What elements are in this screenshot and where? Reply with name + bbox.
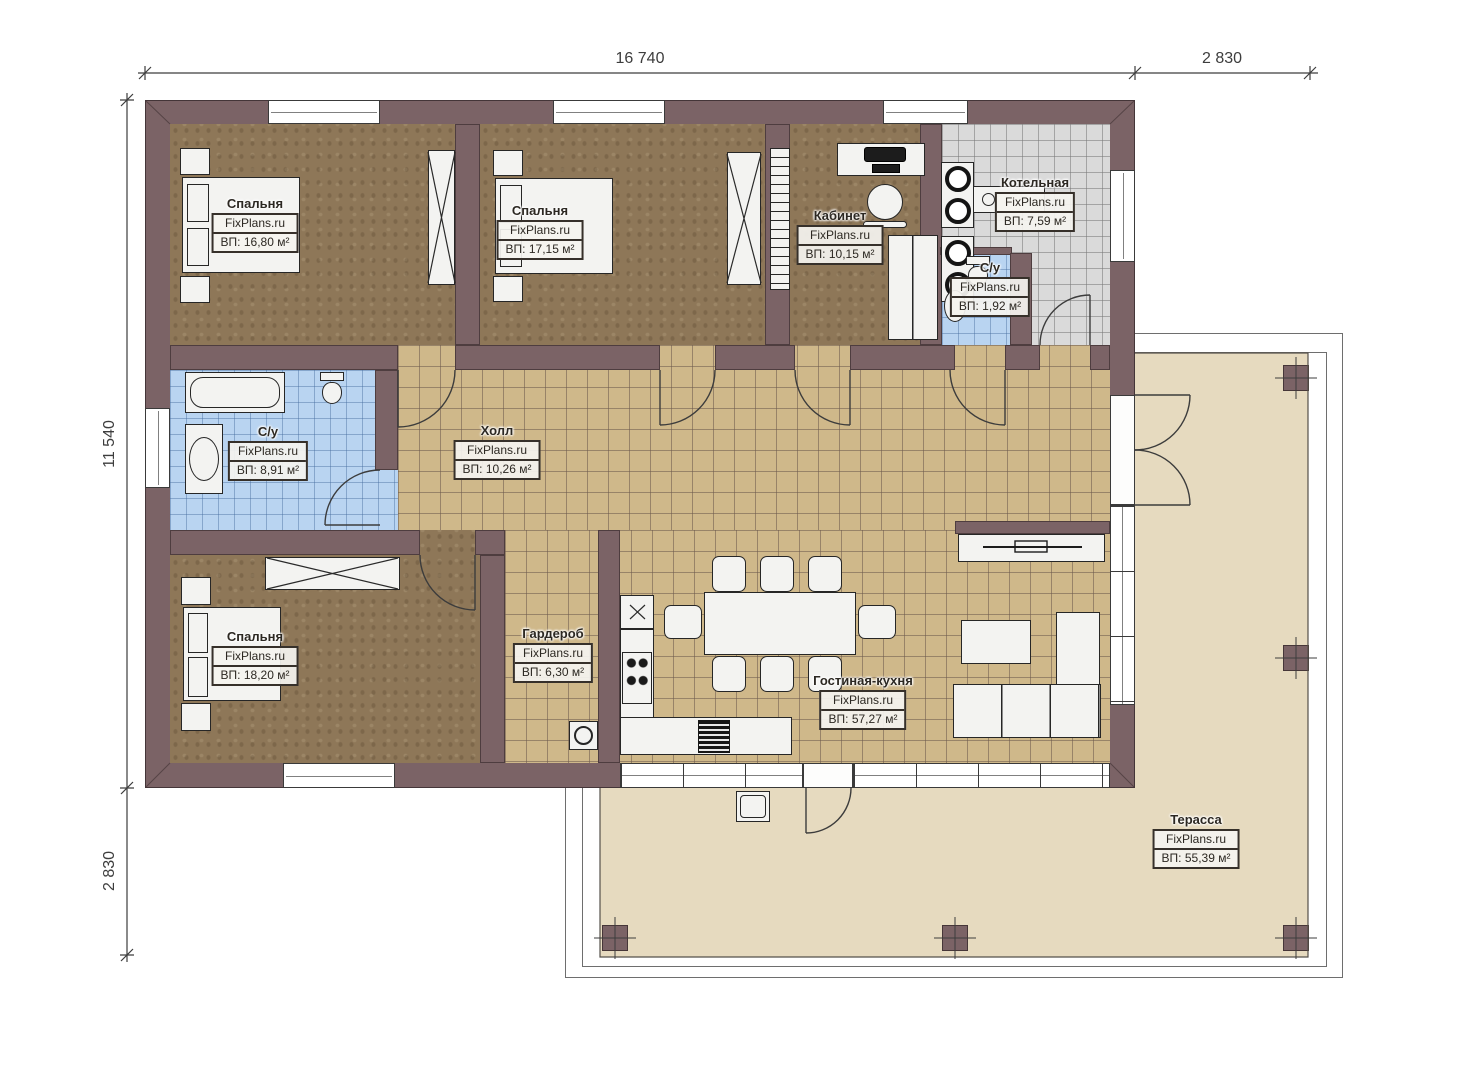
glazing-living-bottom-right <box>853 763 1110 788</box>
room-label-terrace: Терасса FixPlans.ru ВП: 55,39 м² <box>1153 812 1240 869</box>
kitchen-sink <box>736 791 770 822</box>
room-label-living-kitchen: Гостиная-кухня FixPlans.ru ВП: 57,27 м² <box>813 673 913 730</box>
room-label-boiler-room: Котельная FixPlans.ru ВП: 7,59 м² <box>995 175 1075 232</box>
room-area: ВП: 10,15 м² <box>799 244 882 263</box>
room-info-box: FixPlans.ru ВП: 55,39 м² <box>1153 829 1240 869</box>
washing-machine <box>569 721 598 750</box>
room-info-box: FixPlans.ru ВП: 10,15 м² <box>797 225 884 265</box>
dishwasher <box>698 720 730 753</box>
room-info-box: FixPlans.ru ВП: 57,27 м² <box>820 690 907 730</box>
watermark: FixPlans.ru <box>822 692 905 709</box>
room-area: ВП: 1,92 м² <box>952 296 1028 315</box>
watermark: FixPlans.ru <box>997 194 1073 211</box>
wall-hall-top-seg <box>715 345 795 370</box>
glazing-living-bottom-left <box>620 763 803 788</box>
room-area: ВП: 8,91 м² <box>230 460 306 479</box>
water-tank <box>945 166 971 192</box>
dining-chair <box>664 605 702 639</box>
toilet-bowl <box>322 382 342 404</box>
window-office <box>883 100 968 124</box>
dining-chair <box>712 556 746 592</box>
door-hall-terrace-opening <box>1110 395 1135 505</box>
floor-plan: Спальня FixPlans.ru ВП: 16,80 м² Спальня… <box>0 0 1473 1080</box>
watermark: FixPlans.ru <box>952 279 1028 296</box>
room-info-box: FixPlans.ru ВП: 16,80 м² <box>212 213 299 253</box>
room-label-office: Кабинет FixPlans.ru ВП: 10,15 м² <box>797 208 884 265</box>
water-tank <box>945 198 971 224</box>
nightstand <box>493 150 523 176</box>
room-label-bedroom-2: Спальня FixPlans.ru ВП: 17,15 м² <box>497 203 584 260</box>
wall-tv-half <box>955 521 1110 534</box>
watermark: FixPlans.ru <box>499 222 582 239</box>
room-area: ВП: 16,80 м² <box>214 232 297 251</box>
wall-hall-top-seg <box>850 345 955 370</box>
room-info-box: FixPlans.ru ВП: 1,92 м² <box>950 277 1030 317</box>
room-area: ВП: 57,27 м² <box>822 709 905 728</box>
watermark: FixPlans.ru <box>515 645 591 662</box>
pillow <box>187 228 209 266</box>
room-label-hall: Холл FixPlans.ru ВП: 10,26 м² <box>454 423 541 480</box>
dining-chair <box>712 656 746 692</box>
wall-bedroom3-wardrobe <box>480 555 505 763</box>
wall-bedroom3-top-seg <box>170 530 420 555</box>
toilet-tank <box>320 372 344 381</box>
dimension-height-main: 11 540 <box>101 420 119 468</box>
room-area: ВП: 18,20 м² <box>214 665 297 684</box>
laptop <box>872 164 900 173</box>
window-bathroom <box>145 408 170 488</box>
room-name: Кабинет <box>797 208 884 223</box>
room-name: Холл <box>454 423 541 438</box>
glazing-living-right <box>1110 505 1135 705</box>
wall-hall-top-seg <box>170 345 398 370</box>
room-area: ВП: 10,26 м² <box>456 459 539 478</box>
terrace-column <box>1283 365 1309 391</box>
tv-stand <box>958 534 1105 562</box>
wardrobe-closet <box>727 152 761 285</box>
terrace-column <box>602 925 628 951</box>
boiler-dial <box>982 193 995 206</box>
wall-bedroom1-bedroom2 <box>455 124 480 345</box>
nightstand <box>493 276 523 302</box>
room-name: Спальня <box>212 629 299 644</box>
room-label-bedroom-3: Спальня FixPlans.ru ВП: 18,20 м² <box>212 629 299 686</box>
shelving-unit <box>770 148 790 290</box>
wall-hall-top-seg <box>455 345 660 370</box>
sofa <box>953 684 1101 738</box>
window-boiler <box>1110 170 1135 262</box>
room-name: Гостиная-кухня <box>813 673 913 688</box>
window-bedroom1 <box>268 100 380 124</box>
watermark: FixPlans.ru <box>214 648 297 665</box>
nightstand <box>180 148 210 175</box>
sofa-chaise <box>1056 612 1100 686</box>
window-bedroom2 <box>553 100 665 124</box>
wall-bathroom-right <box>375 370 398 470</box>
watermark: FixPlans.ru <box>456 442 539 459</box>
room-area: ВП: 55,39 м² <box>1155 848 1238 867</box>
pillow <box>187 184 209 222</box>
room-info-box: FixPlans.ru ВП: 10,26 м² <box>454 440 541 480</box>
watermark: FixPlans.ru <box>799 227 882 244</box>
wall-hall-top-seg <box>1005 345 1040 370</box>
room-area: ВП: 17,15 м² <box>499 239 582 258</box>
room-name: Спальня <box>497 203 584 218</box>
window-bedroom3 <box>283 763 395 788</box>
watermark: FixPlans.ru <box>230 443 306 460</box>
room-area: ВП: 7,59 м² <box>997 211 1073 230</box>
room-name: Гардероб <box>513 626 593 641</box>
bathtub <box>185 372 285 413</box>
room-label-bedroom-1: Спальня FixPlans.ru ВП: 16,80 м² <box>212 196 299 253</box>
room-info-box: FixPlans.ru ВП: 7,59 м² <box>995 192 1075 232</box>
wardrobe-closet <box>428 150 455 285</box>
wardrobe-closet <box>265 557 400 590</box>
nightstand <box>181 703 211 731</box>
room-info-box: FixPlans.ru ВП: 18,20 м² <box>212 646 299 686</box>
nightstand <box>181 577 211 605</box>
dining-table <box>704 592 856 655</box>
office-cabinet <box>888 235 938 340</box>
room-info-box: FixPlans.ru ВП: 8,91 м² <box>228 441 308 481</box>
watermark: FixPlans.ru <box>1155 831 1238 848</box>
room-info-box: FixPlans.ru ВП: 6,30 м² <box>513 643 593 683</box>
dining-chair <box>760 556 794 592</box>
terrace-column <box>1283 925 1309 951</box>
room-name: Терасса <box>1153 812 1240 827</box>
wall-wardrobe-kitchen <box>598 530 620 763</box>
wall-hall-top-seg <box>1090 345 1110 370</box>
dimension-width-main: 16 740 <box>616 50 665 68</box>
door-living-terrace-opening <box>803 763 853 788</box>
room-info-box: FixPlans.ru ВП: 17,15 м² <box>497 220 584 260</box>
room-label-bathroom: С/у FixPlans.ru ВП: 8,91 м² <box>228 424 308 481</box>
dining-chair <box>858 605 896 639</box>
pillow <box>188 613 208 653</box>
room-area: ВП: 6,30 м² <box>515 662 591 681</box>
room-name: С/у <box>228 424 308 439</box>
dining-chair <box>808 556 842 592</box>
pillow <box>188 657 208 697</box>
wall-bedroom3-top-seg <box>475 530 505 555</box>
stove <box>622 652 652 704</box>
room-name: С/у <box>950 260 1030 275</box>
nightstand <box>180 276 210 303</box>
washbasin <box>189 437 219 481</box>
watermark: FixPlans.ru <box>214 215 297 232</box>
dimension-height-terrace: 2 830 <box>101 851 119 891</box>
dining-chair <box>760 656 794 692</box>
terrace-column <box>942 925 968 951</box>
room-name: Котельная <box>995 175 1075 190</box>
terrace-column <box>1283 645 1309 671</box>
room-label-wc-small: С/у FixPlans.ru ВП: 1,92 м² <box>950 260 1030 317</box>
coffee-table <box>961 620 1031 664</box>
printer <box>864 147 906 162</box>
room-label-wardrobe: Гардероб FixPlans.ru ВП: 6,30 м² <box>513 626 593 683</box>
dimension-width-terrace: 2 830 <box>1202 50 1242 68</box>
room-name: Спальня <box>212 196 299 211</box>
kitchen-upper-cabinet <box>620 595 654 629</box>
